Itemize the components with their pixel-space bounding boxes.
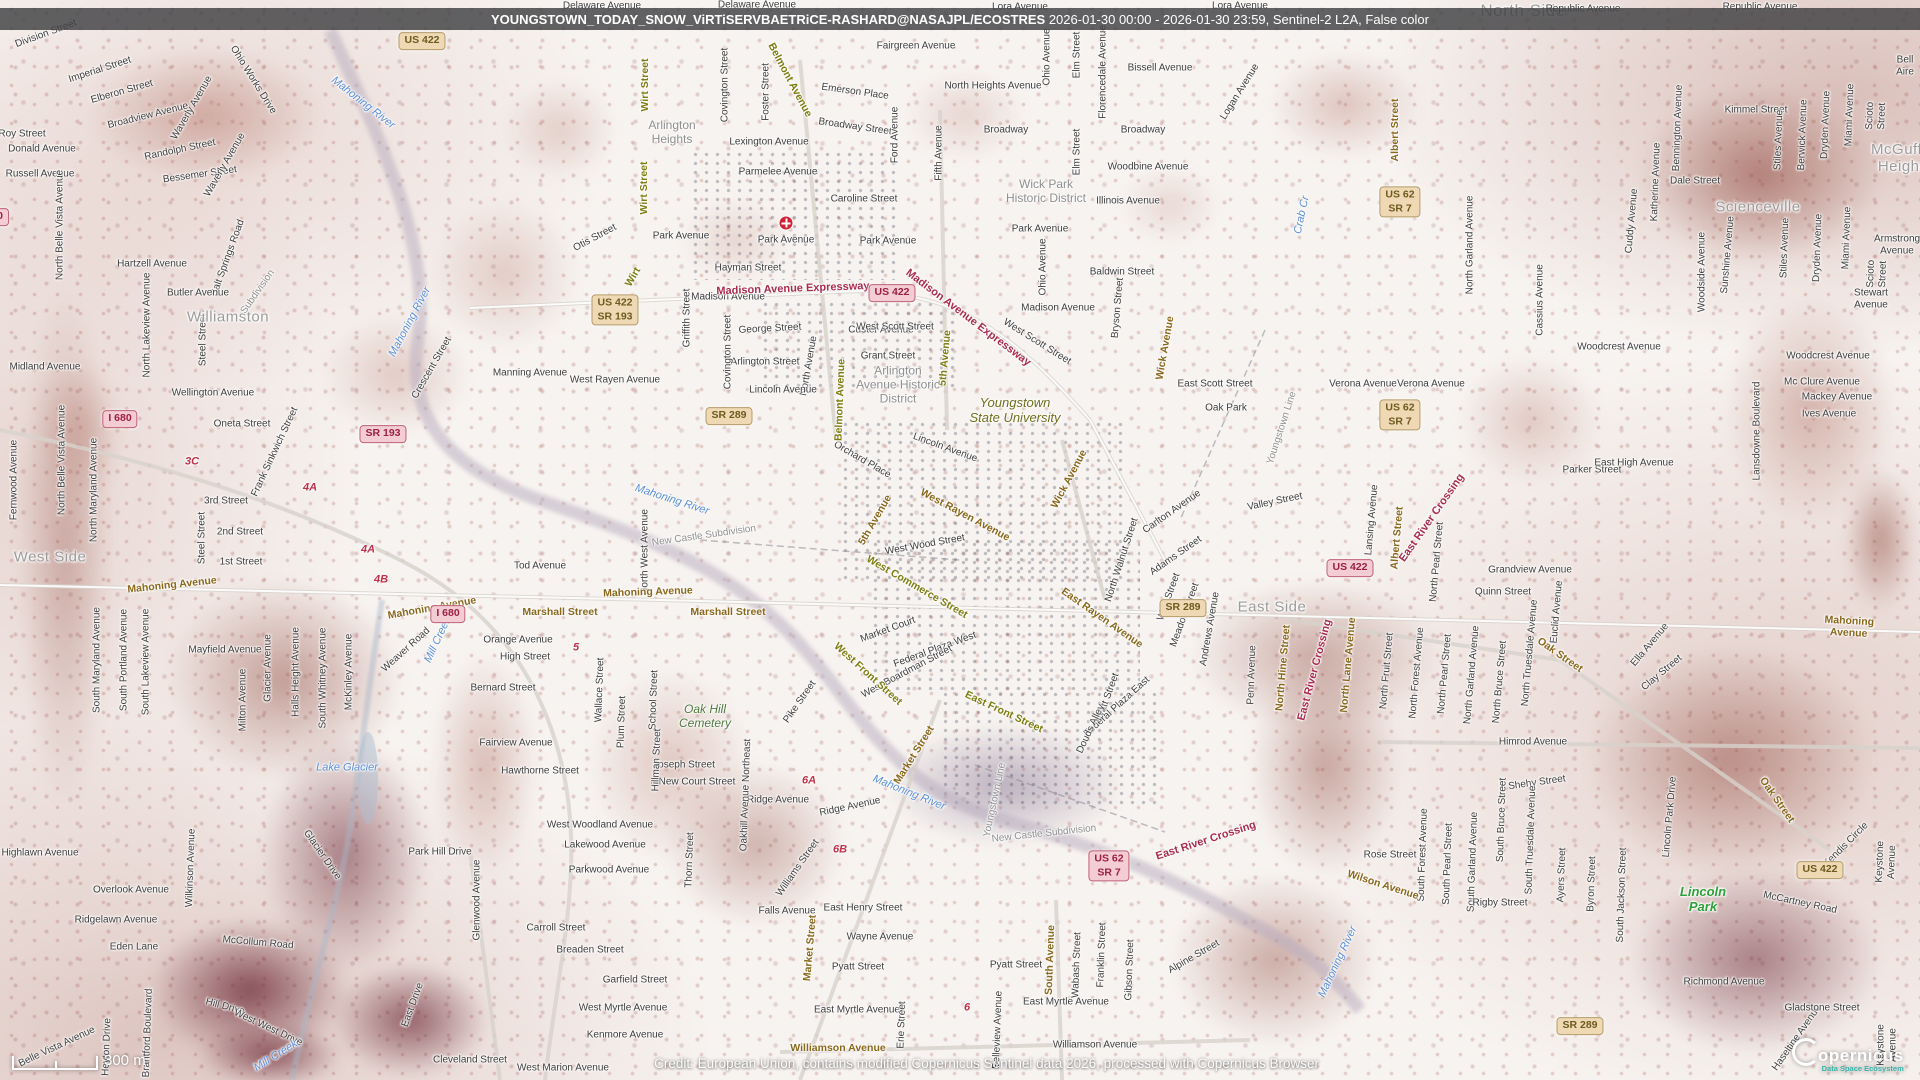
map-label: Arlington Heights [648, 119, 695, 147]
map-label: Clay Street [1639, 653, 1684, 694]
map-label: Park Hill Drive [408, 846, 471, 858]
map-label: Dryden Avenue [1811, 214, 1825, 283]
map-label: Wirt Street [639, 59, 651, 112]
map-label: Youngstown Line [981, 762, 1008, 839]
map-label: Orange Avenue [483, 634, 552, 646]
map-label: Verona Avenue [1329, 378, 1397, 390]
map-label: South Avenue [1043, 925, 1057, 995]
map-label: Elm Street [1071, 129, 1083, 176]
map-label: Oak Hill Cemetery [679, 703, 731, 731]
route-shield: US 422 [1326, 559, 1373, 577]
map-labels-layer: Division StreetDelaware AvenueDelaware A… [0, 0, 1920, 1080]
map-label: North Belle Vista Avenue [56, 405, 68, 515]
map-canvas[interactable]: Division StreetDelaware AvenueDelaware A… [0, 0, 1920, 1080]
map-label: East River Crossing [1154, 819, 1257, 863]
map-label: Arlington Avenue Historic District [856, 364, 940, 405]
map-label: Wirt [623, 265, 644, 289]
map-label: Cleveland Street [433, 1054, 507, 1066]
map-label: West Marion Avenue [517, 1062, 609, 1074]
map-label: Illinois Avenue [1096, 195, 1160, 207]
map-label: Lansdowne Boulevard [1751, 382, 1763, 481]
map-label: Mahoning River [329, 74, 397, 131]
copernicus-logo: opernicus Data Space Ecosystem [1792, 1038, 1904, 1073]
map-label: Verona Avenue [1397, 378, 1465, 390]
map-label: Oakhill Avenue Northeast [738, 738, 753, 851]
map-label: McCartney Road [1762, 890, 1838, 917]
map-label: Oneta Street [214, 418, 271, 430]
map-label: Parmelee Avenue [739, 166, 818, 178]
map-label: Cassius Avenue [1534, 264, 1546, 336]
layer-title-meta: 2026-01-30 00:00 - 2026-01-30 23:59, Sen… [1045, 12, 1429, 27]
map-label: North Belle Vista Avenue [54, 170, 66, 280]
map-label: West Woodland Avenue [547, 819, 653, 831]
map-label: Emerson Place [821, 82, 890, 103]
map-label: North West Avenue [639, 509, 651, 595]
map-label: Mackey Avenue [1802, 391, 1872, 403]
map-label: South Bruce Street [1495, 778, 1509, 863]
map-label: Ohio Works Drive [227, 44, 278, 116]
map-label: Lakewood Avenue [564, 839, 646, 851]
map-label: Carlton Avenue [1141, 488, 1203, 537]
map-label: School Street [647, 670, 661, 730]
map-label: Bell Aire [1896, 55, 1914, 78]
map-label: Belmont Avenue [833, 359, 848, 441]
map-label: Cuddy Avenue [1623, 188, 1640, 254]
map-label: Ford Avenue [889, 107, 901, 164]
map-label: Bennington Avenue [1671, 85, 1686, 172]
map-label: 2nd Street [217, 526, 263, 538]
map-label: 5th Avenue [856, 493, 894, 547]
map-label: East Scott Street [1177, 378, 1252, 390]
map-label: West Rayen Avenue [918, 486, 1011, 543]
map-label: 4A [303, 482, 317, 495]
map-label: Park Avenue [653, 230, 710, 242]
map-label: New Castle Subdivision [991, 823, 1097, 845]
hospital-icon [780, 217, 793, 230]
map-label: Wick Avenue [1153, 315, 1176, 381]
map-label: Broadway [984, 124, 1028, 136]
map-label: Woodcrest Avenue [1577, 341, 1661, 353]
map-label: Milton Avenue [237, 669, 249, 732]
map-label: Imperial Street [67, 54, 132, 85]
map-label: Hillman Street [650, 728, 664, 791]
route-shield: SR 289 [1159, 599, 1206, 617]
map-label: Florencedale Avenue [1097, 25, 1109, 119]
map-label: Mill Creek [252, 1038, 300, 1075]
map-label: 5 [573, 642, 579, 655]
route-shield: I 680 [430, 605, 465, 623]
map-label: West Side [14, 548, 87, 565]
map-label: South Portland Avenue [118, 609, 130, 711]
route-shield: SR 193 [359, 425, 406, 443]
map-label: Glenwood Avenue [471, 860, 483, 941]
map-label: North Lane Avenue [1338, 617, 1358, 713]
map-label: East Front Street [963, 689, 1045, 736]
map-label: Broadway [1121, 124, 1165, 136]
map-label: Covington Street [719, 48, 731, 123]
route-shield: US 422 [868, 284, 915, 302]
map-label: High Street [500, 651, 550, 663]
map-label: Youngstown Line [1265, 390, 1299, 466]
map-label: Stiles Avenue [1772, 110, 1786, 171]
map-label: West Scott Street [1001, 317, 1073, 368]
map-label: Lansing Avenue [1363, 484, 1381, 556]
map-label: Ridge Avenue [747, 794, 809, 806]
map-label: Williamson Avenue [1053, 1039, 1137, 1051]
map-label: Hawthorne Street [501, 765, 579, 777]
map-label: George Street [738, 322, 801, 337]
map-label: Pike Street [781, 679, 818, 726]
map-label: Erie Street [895, 1001, 908, 1049]
map-label: Douds Alley [1075, 703, 1108, 756]
route-shield: I 680 [102, 410, 137, 428]
map-label: Wick Avenue [1049, 448, 1090, 511]
map-label: Rose Street [1364, 849, 1417, 861]
map-label: East Rayen Avenue [1059, 585, 1145, 650]
map-label: East River Crossing [1295, 618, 1334, 722]
map-label: New Court Street [659, 776, 736, 788]
map-label: Oak Park [1205, 402, 1247, 414]
map-label: Mahoning Avenue [127, 574, 217, 595]
layer-title: YOUNGSTOWN_TODAY_SNOW_ViRTiSERVBAETRiCE-… [491, 12, 1429, 27]
map-label: Katherine Avenue [1649, 142, 1663, 221]
map-label: Mc Clure Avenue [1784, 376, 1860, 388]
map-label: Mahoning Avenue [1813, 613, 1885, 641]
map-label: Alpine Street [1166, 938, 1221, 977]
route-shield: SR 289 [705, 407, 752, 425]
map-label: Fifth Avenue [933, 125, 945, 180]
route-shield: US 62SR 7 [1379, 186, 1420, 217]
map-label: North Maryland Avenue [88, 438, 100, 542]
map-label: Park Avenue [860, 235, 917, 247]
map-label: Wallace Street [593, 657, 607, 722]
map-label: Stiles Avenue [1778, 218, 1792, 279]
map-label: Glacier Drive [301, 828, 344, 882]
map-label: Madison Avenue Expressway [716, 280, 870, 298]
map-label: Weaver Road [379, 625, 432, 674]
map-label: Lincoln Avenue [749, 384, 817, 396]
map-label: Madison Avenue [1021, 302, 1095, 314]
attribution: Credit: European Union, contains modifie… [654, 1056, 1319, 1071]
map-label: Wirt Street [638, 162, 650, 215]
map-label: West Rayen Avenue [570, 374, 660, 386]
map-label: Gibson Street [1123, 939, 1137, 1001]
map-label: McCollum Road [222, 934, 294, 952]
map-label: Ridgelawn Avenue [75, 914, 158, 926]
map-label: Marshall Street [522, 606, 597, 618]
map-label: Lincoln Park [1680, 885, 1726, 915]
map-label: Williamson Avenue [790, 1042, 885, 1054]
map-label: 6A [802, 775, 816, 788]
map-label: Scienceville [1715, 198, 1800, 215]
map-label: Lincoln Avenue [911, 431, 979, 465]
map-label: Midland Avenue [10, 361, 81, 373]
map-label: South Jackson Street [1615, 847, 1630, 942]
route-shield: US 62SR 7 [1088, 850, 1129, 881]
map-label: Donald Avenue [8, 143, 76, 155]
map-label: South Maryland Avenue [91, 607, 103, 713]
map-label: North Hine Street [1273, 624, 1293, 711]
map-label: Euclid Avenue [1549, 580, 1566, 644]
map-label: East Side [1238, 598, 1307, 615]
map-label: Halls Height Avenue [290, 627, 302, 717]
route-shield: US 62SR 7 [1379, 399, 1420, 430]
map-label: Baldwin Street [1090, 266, 1154, 278]
map-label: South Whitney Avenue [317, 628, 329, 729]
map-label: South Truesdale Avenue [1523, 785, 1538, 894]
map-label: Mahoning River [871, 773, 947, 814]
map-label: Steel Street [196, 512, 208, 564]
map-label: Woodbine Avenue [1108, 161, 1189, 173]
map-label: Roy Street [0, 128, 46, 140]
map-label: Franklin Street [1095, 922, 1109, 987]
map-label: Logan Avenue [1218, 62, 1262, 122]
map-label: Sunshine Avenue [1719, 216, 1737, 294]
map-label: 3rd Street [204, 495, 248, 507]
map-label: Wick Park Historic District [1006, 178, 1086, 206]
map-label: East High Avenue [1594, 457, 1673, 469]
map-label: East Henry Street [824, 902, 903, 914]
map-label: Caroline Street [831, 193, 898, 205]
map-label: Pyatt Street [990, 959, 1042, 971]
map-label: Bernard Street [470, 682, 535, 694]
map-label: Valley Street [1246, 491, 1303, 514]
route-shield: US 422 [1796, 861, 1843, 879]
map-label: North Lakeview Avenue [141, 273, 153, 378]
map-label: Wayne Avenue [847, 931, 914, 943]
map-label: Park Avenue [1012, 223, 1069, 235]
map-label: Mahoning River [1316, 924, 1360, 999]
map-label: Crab Cr [1292, 195, 1312, 235]
map-label: Foster Street [760, 63, 772, 121]
map-label: Belmont Avenue [765, 41, 814, 119]
map-label: Byron Street [1585, 856, 1598, 912]
map-label: Rigby Street [1472, 897, 1527, 909]
map-label: Mahoning Avenue [603, 584, 693, 599]
map-label: Covington Street [722, 315, 734, 390]
map-label: Gladstone Street [1784, 1002, 1859, 1014]
route-shield: 0 [0, 208, 9, 226]
map-label: Tod Avenue [514, 560, 566, 572]
map-label: Woodside Avenue [1696, 232, 1708, 312]
map-label: West Scott Street [856, 321, 934, 333]
route-shield: US 422 [398, 32, 445, 50]
map-label: Breaden Street [556, 944, 623, 956]
map-label: 6B [833, 844, 847, 857]
copernicus-wordmark: opernicus [1818, 1046, 1904, 1065]
map-label: Madison Avenue Expressway [903, 267, 1033, 369]
map-label: North Forest Avenue [1407, 627, 1426, 719]
map-label: North Garland Avenue [1462, 625, 1482, 724]
map-label: North Walnut Street [1103, 517, 1141, 604]
map-label: North Heights Avenue [944, 80, 1041, 92]
map-label: Garfield Street [603, 974, 667, 986]
map-label: 3C [185, 456, 199, 469]
map-label: Lincoln Park Drive [1661, 776, 1680, 858]
map-label: West Wood Street [884, 532, 966, 557]
map-label: Ridge Avenue [818, 795, 881, 819]
map-label: North Pearl Street [1428, 522, 1446, 603]
map-label: Keystone Avenue [1874, 841, 1898, 883]
map-label: Market Street [801, 914, 819, 981]
map-label: Williamston [187, 308, 269, 325]
map-label: Broadway Street [818, 116, 893, 138]
header-bar: YOUNGSTOWN_TODAY_SNOW_ViRTiSERVBAETRiCE-… [0, 8, 1920, 30]
map-label: Wilkinson Avenue [184, 828, 198, 907]
map-label: Himrod Avenue [1499, 736, 1567, 748]
map-label: Ohio Avenue [1041, 28, 1053, 85]
map-label: Crescent Street [410, 335, 455, 401]
map-label: Lexington Avenue [729, 136, 808, 148]
map-label: Miami Avenue [1840, 206, 1854, 269]
map-label: Dale Street [1670, 175, 1720, 187]
map-label: Adams Street [1148, 534, 1204, 578]
map-label: Mahoning River [386, 285, 433, 359]
scale-bar [12, 1056, 98, 1070]
map-label: Glacier Avenue [262, 634, 274, 702]
map-label: Overlook Avenue [93, 884, 169, 896]
map-label: Elberon Street [90, 78, 155, 107]
map-label: Market Street [891, 724, 936, 787]
map-label: McKinley Avenue [343, 634, 355, 711]
map-label: Otis Street [571, 222, 618, 254]
map-label: South Lakeview Avenue [140, 609, 152, 716]
map-label: West Myrtle Avenue [579, 1002, 668, 1014]
map-label: Fairgreen Avenue [877, 40, 956, 52]
map-label: Wabash Street [1070, 932, 1084, 998]
map-label: Fairview Avenue [479, 737, 552, 749]
map-label: Youngstown State University [969, 396, 1060, 426]
map-label: North Truesdale Avenue [1520, 599, 1541, 707]
map-label: East Myrtle Avenue [1023, 996, 1109, 1008]
map-label: Manning Avenue [493, 367, 567, 379]
map-label: 4A [361, 544, 375, 557]
map-label: Quinn Street [1475, 586, 1531, 598]
map-label: Park Avenue [758, 234, 815, 246]
map-label: Bissell Avenue [1128, 62, 1193, 74]
map-label: Hayman Street [715, 262, 782, 274]
map-label: Lake Glacier [316, 762, 378, 775]
copernicus-c-icon [1792, 1038, 1820, 1066]
map-label: Ayers Street [1555, 847, 1568, 902]
map-label: Wellington Avenue [172, 387, 254, 399]
map-label: Ives Avenue [1802, 408, 1856, 420]
map-label: Plum Street [615, 696, 628, 749]
map-label: Parkwood Avenue [569, 864, 649, 876]
map-label: East Drive [400, 981, 427, 1028]
map-label: Pyatt Street [832, 961, 884, 973]
map-label: Grant Street [861, 350, 915, 362]
map-label: Mayfield Avenue [188, 644, 261, 656]
map-label: Richmond Avenue [1684, 976, 1765, 988]
map-label: Wilson Avenue [1346, 868, 1420, 902]
map-label: West Commerce Street [864, 553, 969, 621]
map-label: Miami Avenue [1843, 83, 1857, 146]
map-label: North Fruit Street [1378, 632, 1396, 709]
map-label: Scioto Street [1864, 94, 1889, 139]
map-label: Oak Street [1757, 775, 1797, 825]
map-label: Scioto Street [1865, 252, 1889, 296]
map-label: New Castle Subdivision [651, 523, 757, 549]
map-label: Berwick Avenue [1796, 99, 1810, 170]
map-label: Orchard Place [831, 439, 892, 481]
map-label: South Forest Avenue [1416, 808, 1431, 902]
scale-label: 300 m [104, 1052, 146, 1069]
map-label: Penn Avenue [1245, 645, 1259, 705]
map-label: McGuffey Heights [1871, 141, 1920, 176]
map-label: Highlawn Avenue [1, 847, 78, 859]
map-label: Bryson Street [1110, 277, 1127, 338]
map-label: Armstrong Avenue [1874, 234, 1920, 257]
map-label: Butler Avenue [167, 287, 229, 299]
map-label: Elm Street [1071, 32, 1083, 79]
map-label: Salt Springs Road [209, 218, 247, 298]
map-label: Arlington Street [731, 356, 800, 368]
route-shield: SR 289 [1556, 1017, 1603, 1035]
map-label: North Pearl Street [1436, 634, 1454, 715]
map-label: Fernwood Avenue [8, 440, 20, 520]
map-label: Woodcrest Avenue [1786, 350, 1870, 362]
map-label: Marshall Street [690, 606, 765, 618]
map-label: 6 [964, 1002, 970, 1015]
map-label: Carroll Street [527, 922, 586, 934]
map-label: 1st Street [220, 556, 263, 568]
map-label: Eden Lane [110, 941, 158, 953]
map-label: Randolph Street [143, 137, 216, 163]
map-label: 4B [374, 574, 388, 587]
map-label: Albert Street [1389, 98, 1401, 161]
map-label: South Pearl Street [1441, 823, 1455, 905]
map-label: Dryden Avenue [1819, 91, 1833, 160]
route-shield: US 422SR 193 [591, 294, 638, 325]
map-label: Kenmore Avenue [587, 1029, 664, 1041]
map-label: Williams Street [774, 837, 822, 898]
layer-title-name: YOUNGSTOWN_TODAY_SNOW_ViRTiSERVBAETRiCE-… [491, 12, 1045, 27]
map-label: North Garland Avenue [1464, 196, 1476, 295]
map-label: Hartzell Avenue [117, 258, 187, 270]
map-label: Grandview Avenue [1488, 564, 1572, 576]
map-label: Thorn Street [683, 832, 696, 888]
map-label: Ohio Avenue [1037, 238, 1049, 295]
map-label: Market Court [859, 615, 917, 646]
map-label: North Bruce Street [1491, 640, 1510, 723]
map-label: East Myrtle Avenue [814, 1004, 900, 1016]
